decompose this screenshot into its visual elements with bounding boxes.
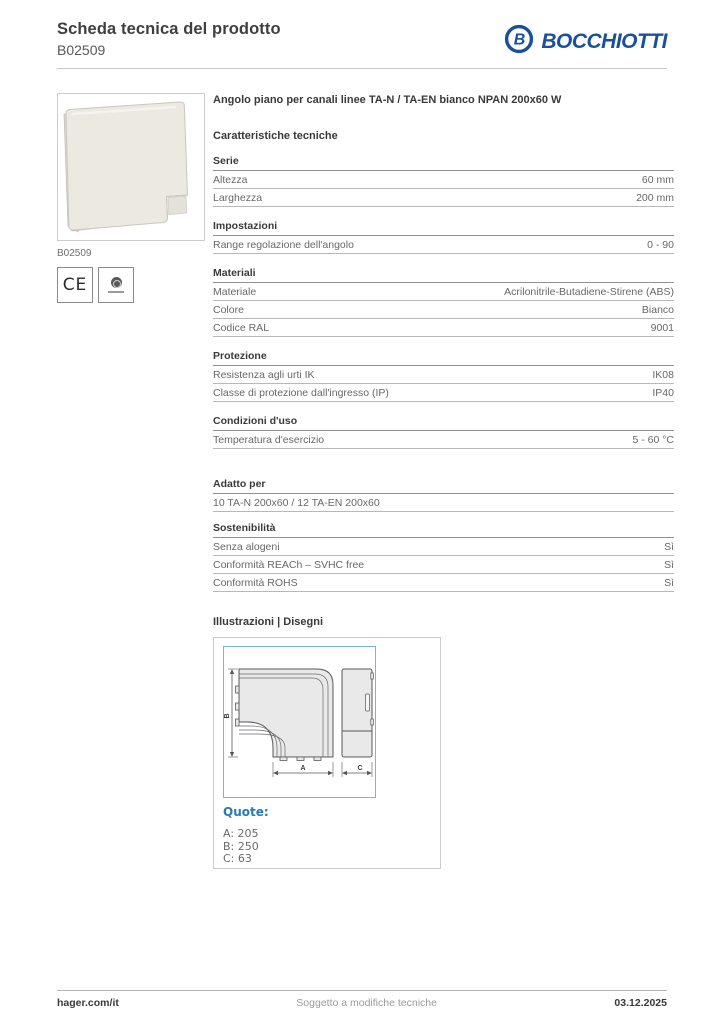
spec-value: 200 mm [636, 192, 674, 205]
spec-label: Conformità ROHS [213, 577, 298, 590]
spec-value: 0 - 90 [647, 239, 674, 252]
product-title: Angolo piano per canali linee TA-N / TA-… [213, 93, 674, 107]
spec-section-title: Adatto per [213, 478, 674, 494]
spec-value: Sì [664, 541, 674, 554]
spec-section: MaterialiMaterialeAcrilonitrile-Butadien… [213, 267, 674, 337]
brand-wordmark: BOCCHIOTTI [541, 30, 667, 54]
spec-section: Condizioni d'usoTemperatura d'esercizio5… [213, 415, 674, 449]
quote-label: Quote: [223, 805, 440, 819]
bocchiotti-circle-b-icon: B [504, 24, 534, 59]
spec-value: IP40 [652, 387, 674, 400]
header-divider [57, 68, 667, 69]
spec-label: Temperatura d'esercizio [213, 434, 324, 447]
spec-label: Conformità REACh – SVHC free [213, 559, 364, 572]
datasheet-page: Scheda tecnica del prodotto B02509 B BOC… [0, 0, 724, 1024]
spec-label: Larghezza [213, 192, 262, 205]
spec-label: Codice RAL [213, 322, 269, 335]
spec-label: Colore [213, 304, 244, 317]
spec-row: Temperatura d'esercizio5 - 60 °C [213, 431, 674, 449]
header: Scheda tecnica del prodotto B02509 B BOC… [57, 20, 667, 58]
spec-value: Sì [664, 577, 674, 590]
ce-mark-icon: CE [57, 267, 93, 303]
quote-dimensions: A: 205B: 250C: 63 [223, 828, 440, 866]
certification-mark-icon [98, 267, 134, 303]
spec-section-title: Sostenibilità [213, 522, 674, 538]
spec-sections: SerieAltezza60 mmLarghezza200 mmImpostaz… [213, 155, 674, 592]
spec-row: Senza alogeniSì [213, 538, 674, 556]
spec-row: Resistenza agli urti IKIK08 [213, 366, 674, 384]
spec-row: 10 TA-N 200x60 / 12 TA-EN 200x60 [213, 494, 674, 512]
illustration-panel: B A C Quote: A: 20 [213, 637, 441, 869]
website-link[interactable]: hager.com/it [57, 997, 119, 1009]
spec-value: 9001 [651, 322, 674, 335]
svg-text:B: B [514, 32, 526, 49]
spec-section-title: Impostazioni [213, 220, 674, 236]
dimension-value: C: 63 [223, 853, 440, 866]
footer-note: Soggetto a modifiche tecniche [296, 997, 437, 1009]
spec-label: Senza alogeni [213, 541, 280, 554]
spec-row: Codice RAL9001 [213, 319, 674, 337]
spec-section: SostenibilitàSenza alogeniSìConformità R… [213, 522, 674, 592]
technical-drawing: B A C [223, 646, 376, 798]
dim-label-a: A [300, 765, 305, 772]
spec-value: 60 mm [642, 174, 674, 187]
spec-section-title: Protezione [213, 350, 674, 366]
footer-divider [57, 990, 667, 991]
dimension-value: B: 250 [223, 841, 440, 854]
spec-section: ProtezioneResistenza agli urti IKIK08Cla… [213, 350, 674, 402]
spec-label: Range regolazione dell'angolo [213, 239, 354, 252]
dim-label-b: B [224, 713, 231, 718]
spec-section-title: Materiali [213, 267, 674, 283]
illustrations-heading: Illustrazioni | Disegni [213, 616, 674, 628]
spec-label: Resistenza agli urti IK [213, 369, 315, 382]
dim-label-c: C [357, 765, 362, 772]
spec-row: Range regolazione dell'angolo0 - 90 [213, 236, 674, 254]
spec-section: ImpostazioniRange regolazione dell'angol… [213, 220, 674, 254]
brand-logo: B BOCCHIOTTI [504, 24, 667, 59]
footer-date: 03.12.2025 [614, 997, 667, 1009]
certification-mark-text [108, 291, 124, 293]
spec-label: Classe di protezione dall'ingresso (IP) [213, 387, 389, 400]
certification-circle-icon [111, 277, 122, 288]
product-photo [57, 93, 205, 241]
spec-section: Adatto per10 TA-N 200x60 / 12 TA-EN 200x… [213, 478, 674, 512]
spec-value: Acrilonitrile-Butadiene-Stirene (ABS) [504, 286, 674, 299]
spec-row: MaterialeAcrilonitrile-Butadiene-Stirene… [213, 283, 674, 301]
spec-value: Bianco [642, 304, 674, 317]
spec-row: Conformità ROHSSì [213, 574, 674, 592]
spec-value: IK08 [652, 369, 674, 382]
product-photo-caption: B02509 [57, 248, 205, 259]
spec-row: Conformità REACh – SVHC freeSì [213, 556, 674, 574]
spec-label: Altezza [213, 174, 247, 187]
specs-heading: Caratteristiche tecniche [213, 130, 674, 142]
dimension-value: A: 205 [223, 828, 440, 841]
spec-row: Altezza60 mm [213, 171, 674, 189]
spec-section-title: Condizioni d'uso [213, 415, 674, 431]
spec-value: Sì [664, 559, 674, 572]
footer: hager.com/it Soggetto a modifiche tecnic… [57, 997, 667, 1009]
spec-section-title: Serie [213, 155, 674, 171]
spec-value: 5 - 60 °C [632, 434, 674, 447]
left-panel: B02509 CE [57, 93, 205, 303]
spec-row: Classe di protezione dall'ingresso (IP)I… [213, 384, 674, 402]
main-content: Angolo piano per canali linee TA-N / TA-… [213, 93, 674, 869]
spec-label: 10 TA-N 200x60 / 12 TA-EN 200x60 [213, 497, 380, 510]
spec-row: Larghezza200 mm [213, 189, 674, 207]
certifications: CE [57, 267, 205, 303]
spec-section: SerieAltezza60 mmLarghezza200 mm [213, 155, 674, 207]
spec-label: Materiale [213, 286, 256, 299]
spec-row: ColoreBianco [213, 301, 674, 319]
ce-mark-label: CE [63, 275, 88, 295]
